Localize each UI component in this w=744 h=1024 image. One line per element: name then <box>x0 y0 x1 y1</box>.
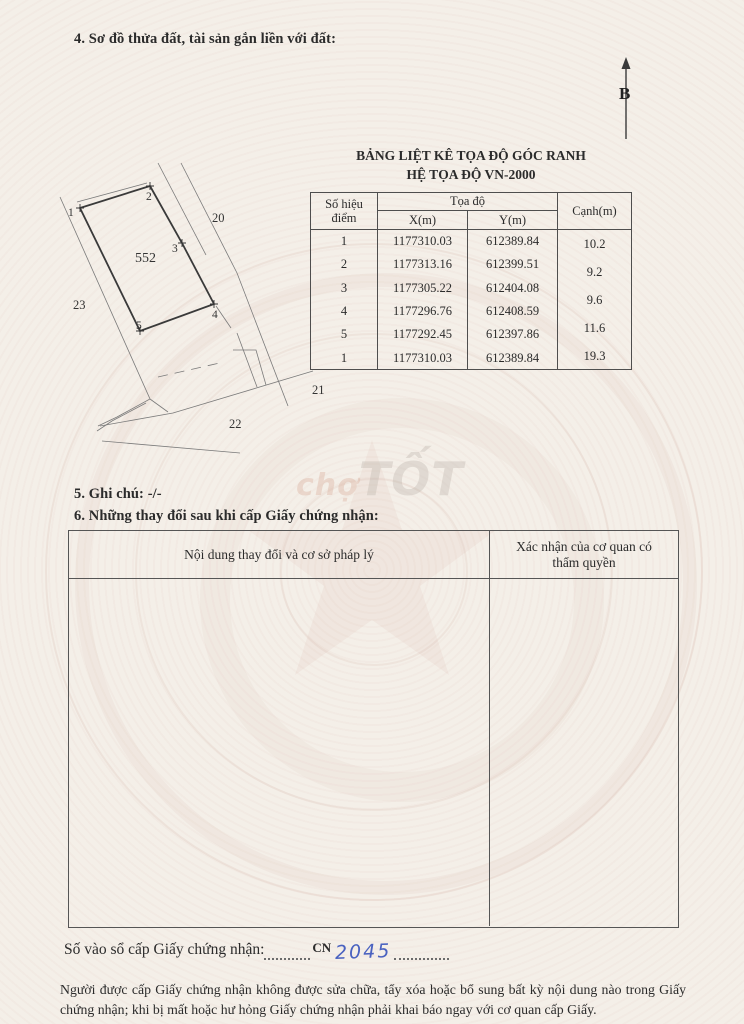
registry-prefix: CN <box>310 940 333 960</box>
col-header-x: X(m) <box>378 211 468 229</box>
point-id-column: 1 2 3 4 5 1 <box>311 230 378 370</box>
chotot-watermark-main: TỐT <box>359 452 464 506</box>
section4-heading: 4. Sơ đồ thửa đất, tài sản gắn liền với … <box>74 31 336 48</box>
x-column: 1177310.03 1177313.16 1177305.22 1177296… <box>378 230 468 370</box>
point-id: 4 <box>311 304 377 319</box>
neighbor-label-21: 21 <box>312 383 325 397</box>
vertex-label-2: 2 <box>146 191 152 203</box>
x-value: 1177305.22 <box>378 281 467 296</box>
edge-length-column: 10.2 9.2 9.6 11.6 19.3 <box>558 230 631 370</box>
col-header-coordinates: Tọa độ <box>378 193 557 211</box>
y-value: 612408.59 <box>468 304 557 319</box>
point-id: 2 <box>311 257 377 272</box>
changes-table: Nội dung thay đổi và cơ sở pháp lý Xác n… <box>68 530 679 928</box>
x-value: 1177296.76 <box>378 304 467 319</box>
col-header-change-content: Nội dung thay đổi và cơ sở pháp lý <box>69 531 490 578</box>
footer-notice: Người được cấp Giấy chứng nhận không đượ… <box>60 980 686 1020</box>
neighbor-label-22: 22 <box>229 417 242 431</box>
vertex-label-5: 5 <box>136 320 142 332</box>
changes-table-divider <box>489 579 490 926</box>
coordinate-table-header: Số hiệu điểm Tọa độ X(m) Y(m) Cạnh(m) <box>311 193 631 230</box>
north-arrow-icon: B <box>600 55 652 143</box>
dotted-leader <box>394 942 449 960</box>
neighbor-label-23: 23 <box>73 298 86 312</box>
registry-label: Số vào sổ cấp Giấy chứng nhận: <box>64 941 264 960</box>
y-value: 612397.86 <box>468 327 557 342</box>
section6-heading: 6. Những thay đổi sau khi cấp Giấy chứng… <box>74 508 379 525</box>
coordinate-table: Số hiệu điểm Tọa độ X(m) Y(m) Cạnh(m) 1 … <box>310 192 632 370</box>
col-header-edge: Cạnh(m) <box>558 193 631 229</box>
edge-length: 11.6 <box>558 321 631 336</box>
dotted-leader <box>264 942 310 960</box>
section5-heading: 5. Ghi chú: -/- <box>74 486 162 503</box>
y-column: 612389.84 612399.51 612404.08 612408.59 … <box>468 230 558 370</box>
point-id: 1 <box>311 351 377 366</box>
y-value: 612389.84 <box>468 351 557 366</box>
edge-length: 10.2 <box>558 237 631 252</box>
point-id: 1 <box>311 234 377 249</box>
col-header-point-id: Số hiệu điểm <box>311 193 378 229</box>
neighbor-label-20: 20 <box>212 211 225 225</box>
edge-length: 19.3 <box>558 349 631 364</box>
x-value: 1177313.16 <box>378 257 467 272</box>
changes-table-header: Nội dung thay đổi và cơ sở pháp lý Xác n… <box>69 531 678 579</box>
col-header-y: Y(m) <box>468 211 557 229</box>
scanned-land-certificate-page: 4. Sơ đồ thửa đất, tài sản gắn liền với … <box>0 0 744 1024</box>
y-value: 612404.08 <box>468 281 557 296</box>
edge-length: 9.6 <box>558 293 631 308</box>
registry-number-line: Số vào sổ cấp Giấy chứng nhận: CN 2045 <box>64 934 449 960</box>
north-arrow-label: B <box>619 84 630 103</box>
coordinate-table-body: 1 2 3 4 5 1 1177310.03 1177313.16 117730… <box>311 230 631 370</box>
x-value: 1177292.45 <box>378 327 467 342</box>
y-value: 612389.84 <box>468 234 557 249</box>
registry-number-handwritten: 2045 <box>333 940 394 964</box>
vertex-label-1: 1 <box>68 207 74 219</box>
x-value: 1177310.03 <box>378 234 467 249</box>
point-id: 5 <box>311 327 377 342</box>
y-value: 612399.51 <box>468 257 557 272</box>
col-header-authority-confirmation: Xác nhận của cơ quan có thẩm quyền <box>490 531 678 578</box>
point-id: 3 <box>311 281 377 296</box>
vertex-label-4: 4 <box>212 309 218 321</box>
parcel-number-label: 552 <box>135 251 156 266</box>
changes-table-body <box>69 579 678 926</box>
edge-length: 9.2 <box>558 265 631 280</box>
vertex-label-3: 3 <box>172 243 178 255</box>
x-value: 1177310.03 <box>378 351 467 366</box>
